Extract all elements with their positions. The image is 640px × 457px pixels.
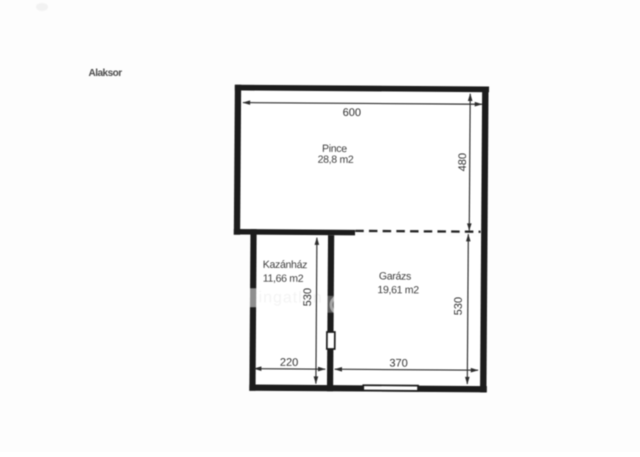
svg-text:530: 530 [453,297,465,315]
svg-text:530: 530 [302,288,314,306]
svg-text:220: 220 [280,357,298,369]
svg-text:600: 600 [343,107,361,119]
svg-text:19,61 m2: 19,61 m2 [377,284,419,296]
svg-text:Garázs: Garázs [379,270,411,282]
svg-text:Kazánház: Kazánház [263,259,307,271]
svg-text:Alaksor: Alaksor [89,68,123,79]
svg-text:370: 370 [389,358,407,370]
svg-text:11,66 m2: 11,66 m2 [263,273,304,285]
svg-text:28,8 m2: 28,8 m2 [318,154,354,166]
svg-text:480: 480 [457,153,469,171]
